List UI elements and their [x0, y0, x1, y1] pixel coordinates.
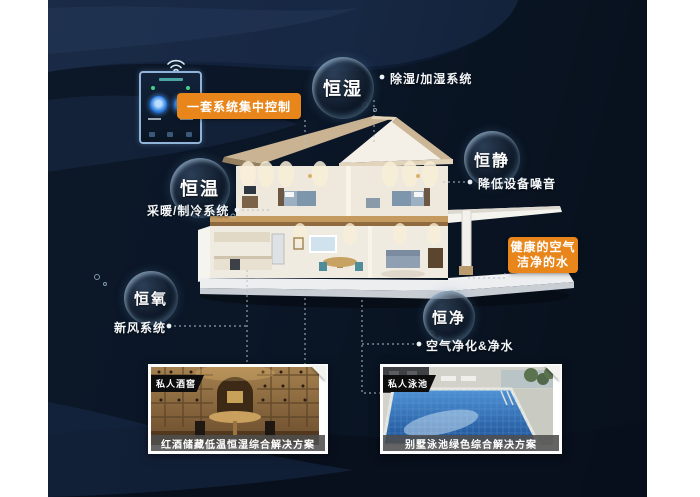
wine-cellar-tag: 私人酒窖 — [151, 375, 204, 392]
central-control-label: 一套系统集中控制 — [177, 93, 301, 119]
infographic-stage: 一套系统集中控制 恒湿 除湿/加湿系统 恒静 降低设备噪音 恒温 采暖/制冷系统… — [48, 0, 647, 497]
pool-photo: 私人泳池 别墅泳池绿色综合解决方案 — [380, 364, 562, 454]
wine-cellar-caption: 红酒储藏低温恒湿综合解决方案 — [151, 435, 325, 451]
photo-corner-fold — [311, 366, 326, 381]
note-quiet: 降低设备噪音 — [478, 175, 556, 192]
panel-indicator — [151, 86, 155, 90]
bubble-oxygen: 恒氧 — [124, 271, 178, 325]
panel-key — [167, 132, 173, 137]
panel-indicator — [186, 86, 190, 90]
bubble-humidity: 恒湿 — [312, 57, 374, 119]
pool-caption: 别墅泳池绿色综合解决方案 — [383, 435, 559, 451]
note-humidity: 除湿/加湿系统 — [390, 70, 472, 87]
note-temperature: 采暖/制冷系统 — [147, 202, 229, 219]
panel-key — [186, 132, 192, 137]
photo-corner-fold — [545, 366, 560, 381]
benefit-line1: 健康的空气 — [510, 240, 575, 255]
panel-key — [149, 132, 155, 137]
wine-cellar-photo: 私人酒窖 红酒储藏低温恒湿综合解决方案 — [148, 364, 328, 454]
note-clean: 空气净化&净水 — [426, 337, 514, 354]
pool-tag: 私人泳池 — [383, 375, 436, 392]
benefit-line2: 洁净的水 — [517, 255, 569, 270]
panel-readout — [148, 118, 161, 120]
panel-dial — [149, 95, 168, 114]
benefit-label: 健康的空气 洁净的水 — [508, 237, 578, 273]
panel-title-bar — [159, 78, 183, 81]
bubble-clean: 恒净 — [423, 291, 475, 343]
note-oxygen: 新风系统 — [114, 319, 166, 336]
